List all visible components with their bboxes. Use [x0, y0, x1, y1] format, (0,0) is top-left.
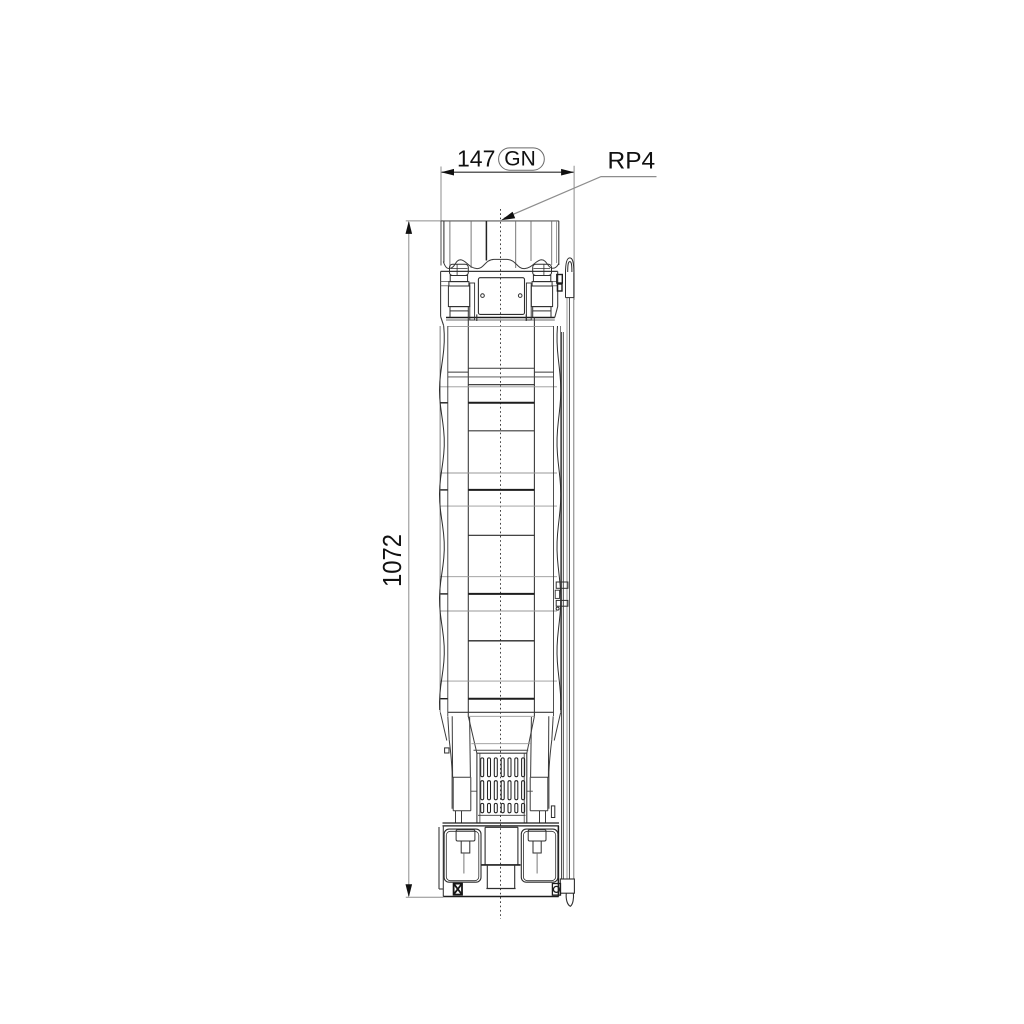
svg-text:147: 147	[457, 146, 495, 172]
svg-text:GN: GN	[504, 148, 536, 171]
svg-text:1072: 1072	[377, 534, 407, 587]
svg-text:RP4: RP4	[608, 147, 656, 174]
